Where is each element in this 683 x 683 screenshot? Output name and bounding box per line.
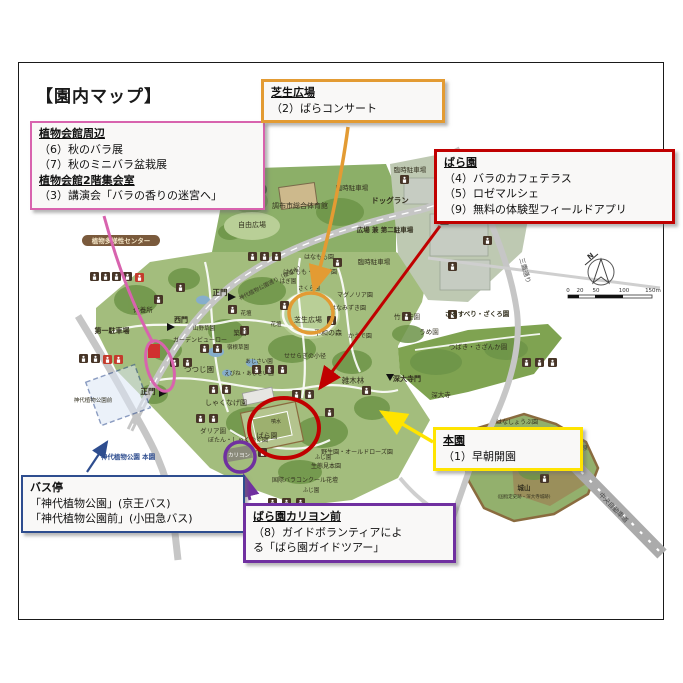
map-label: 国際バラコンクール花壇	[272, 476, 338, 484]
map-label: ガーデンビューロー	[173, 336, 227, 344]
map-label: うめ園	[419, 328, 439, 336]
map-label: カリヨン	[228, 452, 251, 459]
facility-icon	[333, 258, 342, 267]
map-label: 調布市総合体育館	[272, 201, 328, 210]
facility-icon	[400, 175, 409, 184]
facility-icon	[278, 365, 287, 374]
map-label: 神代植物公園前	[74, 396, 113, 404]
scale-bar	[568, 295, 652, 298]
callout-title: 植物会館周辺	[39, 126, 256, 142]
map-label: はなみずき園	[330, 304, 366, 312]
callout-bus-stop: バス停 「神代植物公園」(京王バス) 「神代植物公園前」(小田急バス)	[21, 475, 245, 533]
map-label: はなしょうぶ園	[496, 419, 538, 426]
facility-icon	[209, 385, 218, 394]
map-label: 臨時駐車場	[358, 257, 391, 266]
facility-icon	[325, 408, 334, 417]
facility-icon	[101, 272, 110, 281]
map-label: 広場 兼 第二駐車場	[357, 225, 414, 234]
map-label: 噴水	[271, 418, 281, 425]
map-label: 城山	[518, 483, 531, 492]
facility-icon	[540, 474, 549, 483]
map-label: 花壇	[240, 309, 252, 317]
facility-icon	[196, 414, 205, 423]
callout-rose-garden: ばら園 （4）バラのカフェテラス （5）ロゼマルシェ （9）無料の体験型フィール…	[434, 149, 675, 224]
callout-title: 芝生広場	[271, 85, 435, 101]
map-label: 深大寺	[431, 390, 451, 399]
map-label: N	[586, 251, 596, 261]
map-label: 生態見本園	[311, 462, 341, 470]
callout-title: 本園	[443, 433, 573, 449]
callout-line: 「神代植物公園前」(小田急バス)	[30, 511, 236, 527]
facility-icon	[272, 252, 281, 261]
map-label: 雑木林	[342, 375, 365, 385]
callout-line: 「神代植物公園」(京王バス)	[30, 496, 236, 512]
botanical-hall-building	[148, 344, 160, 358]
map-label: 100	[619, 288, 630, 294]
map-label: 山野草園	[193, 324, 216, 332]
callout-lawn-plaza: 芝生広場 （2）ばらコンサート	[261, 79, 445, 123]
callout-line: （9）無料の体験型フィールドアプリ	[444, 202, 665, 218]
map-label: さくら園	[298, 285, 321, 292]
alert-icon	[135, 273, 144, 282]
facility-icon	[213, 344, 222, 353]
map-label: 深大寺門	[393, 374, 421, 383]
map-label: 中央自動車道	[597, 490, 631, 525]
map-label: 正門	[141, 387, 156, 396]
alert-icon	[103, 355, 112, 364]
page-title: 【園内マップ】	[36, 82, 162, 107]
facility-icon	[305, 390, 314, 399]
facility-icon	[90, 272, 99, 281]
facility-icon	[548, 358, 557, 367]
facility-icon	[112, 272, 121, 281]
map-label: えびね・あじさい園	[224, 369, 274, 377]
map-label: 20	[577, 288, 584, 294]
map-label: 西門	[174, 315, 188, 324]
callout-line: （7）秋のミニバラ盆栽展	[39, 157, 256, 173]
map-label: 正門	[213, 288, 228, 297]
map-label: 150m	[645, 288, 661, 294]
callout-line: （5）ロゼマルシェ	[444, 186, 665, 202]
callout-carillon: ばら園カリヨン前 （8）ガイドボランティアによ る「ばら園ガイドツアー」	[243, 503, 456, 563]
map-label: (国指定史跡・深大寺城跡)	[497, 493, 550, 500]
map-label: 芝生広場	[294, 315, 322, 324]
callout-main-garden: 本園 （1）早朝開園	[433, 427, 583, 471]
map-label: マグノリア園	[337, 291, 373, 299]
map-label: 50	[593, 288, 600, 294]
map-label: 花壇	[270, 320, 282, 328]
callout-title: バス停	[30, 480, 236, 496]
callout-line: （1）早朝開園	[443, 449, 573, 465]
facility-icon	[154, 295, 163, 304]
callout-botanical-hall: 植物会館周辺 （6）秋のバラ展 （7）秋のミニバラ盆栽展 植物会館2階集会室 （…	[30, 121, 265, 210]
map-label: 自由広場	[238, 220, 266, 229]
facility-icon	[176, 283, 185, 292]
facility-icon	[200, 344, 209, 353]
map-label: ばら園	[257, 431, 278, 440]
callout-line: （2）ばらコンサート	[271, 101, 435, 117]
facility-icon	[483, 236, 492, 245]
alert-icon	[114, 355, 123, 364]
map-label: 竹・笹園	[394, 312, 420, 321]
map-label: はなもも園	[304, 254, 334, 261]
facility-icon	[448, 262, 457, 271]
callout-line: る「ばら園ガイドツアー」	[253, 540, 446, 556]
facility-icon	[280, 301, 289, 310]
callout-line: （3）講演会「バラの香りの迷宮へ」	[39, 188, 256, 204]
map-label: ふじ園	[303, 487, 320, 494]
map-label: 第一駐車場	[95, 326, 130, 335]
map-label: 臨時駐車場	[394, 165, 427, 174]
map-label: 宿根草園	[227, 343, 250, 351]
map-label: ドッグラン	[371, 195, 409, 205]
map-label: せせらぎの小径	[284, 352, 326, 360]
facility-icon	[362, 386, 371, 395]
callout-line: （8）ガイドボランティアによ	[253, 525, 446, 541]
map-label: 0	[566, 288, 570, 294]
map-label: つつじ園	[184, 365, 214, 374]
facility-icon	[91, 354, 100, 363]
facility-icon	[222, 385, 231, 394]
facility-icon	[228, 305, 237, 314]
facility-icon	[79, 354, 88, 363]
callout-title: 植物会館2階集会室	[39, 173, 256, 189]
facility-icon	[209, 414, 218, 423]
callout-title: ばら園	[444, 155, 665, 171]
map-label: ダリア園	[200, 426, 226, 435]
screenshot-page: 調布市総合体育館自由広場臨時駐車場臨時駐車場ドッグラン広場 兼 第二駐車場臨時駐…	[0, 0, 683, 683]
map-label: 神代植物公園 本園	[101, 452, 156, 461]
map-label: つばき・さざんか園	[449, 342, 508, 351]
map-label: しゃくなげ園	[205, 398, 247, 407]
map-label: 臨時駐車場	[336, 183, 369, 192]
map-label: 築山	[234, 328, 247, 337]
map-label: 野生園・オールドローズ園	[321, 448, 393, 456]
facility-icon	[522, 358, 531, 367]
map-label: あじさい園	[245, 358, 273, 365]
facility-icon	[248, 252, 257, 261]
map-label: ふじ園	[315, 454, 332, 461]
map-label: 植物多様性センター	[91, 236, 151, 245]
facility-icon	[260, 252, 269, 261]
callout-line: （4）バラのカフェテラス	[444, 171, 665, 187]
callout-line: （6）秋のバラ展	[39, 142, 256, 158]
callout-title: ばら園カリヨン前	[253, 509, 446, 525]
map-label: さるすべり・ざくろ園	[445, 309, 510, 318]
facility-icon	[535, 358, 544, 367]
